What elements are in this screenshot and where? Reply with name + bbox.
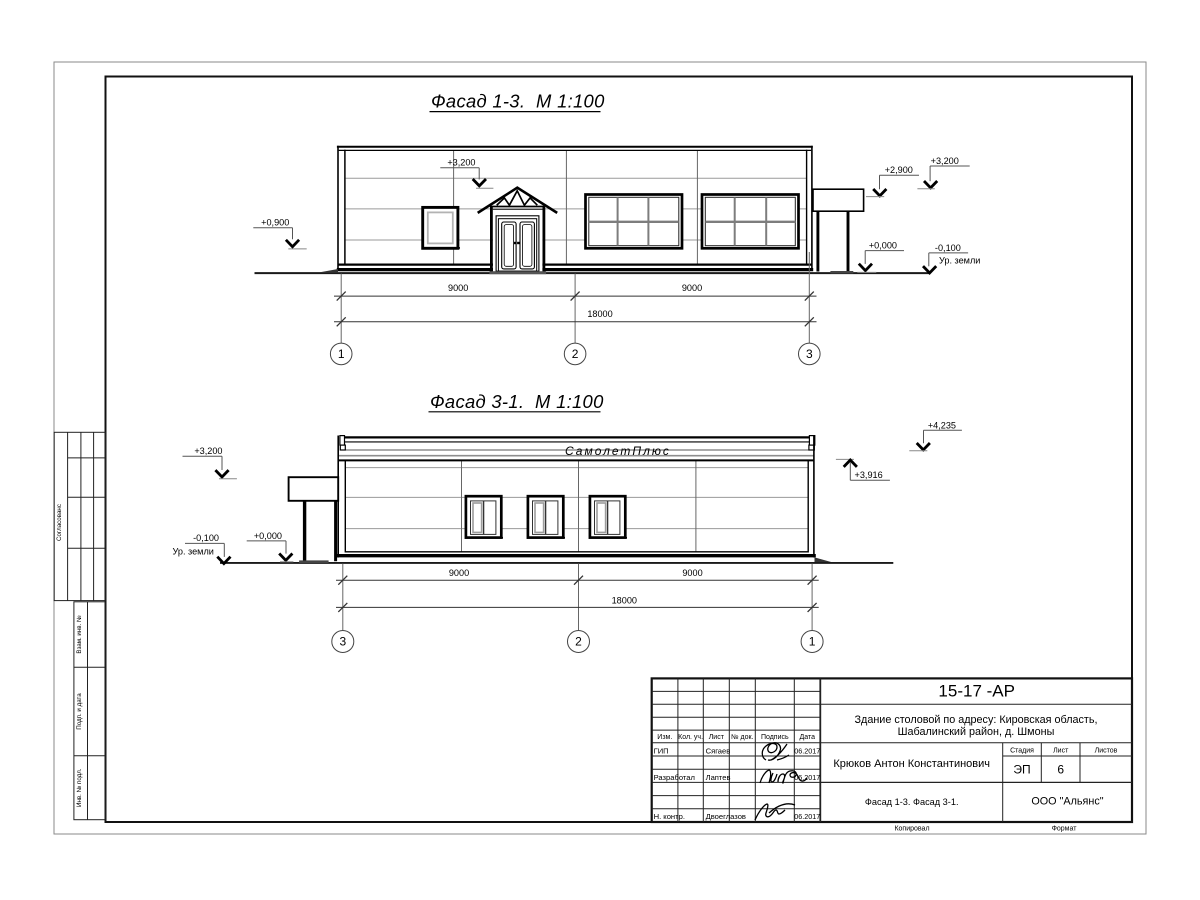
svg-text:Подп. и дата: Подп. и дата xyxy=(76,693,83,730)
svg-text:Ур. земли: Ур. земли xyxy=(173,546,214,556)
svg-text:+4,235: +4,235 xyxy=(928,420,956,430)
svg-text:-0,100: -0,100 xyxy=(193,533,219,543)
svg-text:№ док.: № док. xyxy=(731,734,753,741)
svg-text:ООО "Альянс": ООО "Альянс" xyxy=(1031,795,1103,807)
svg-text:9000: 9000 xyxy=(448,283,468,293)
svg-text:9000: 9000 xyxy=(449,568,469,578)
svg-text:Фасад 1-3. М 1:100: Фасад 1-3. М 1:100 xyxy=(431,91,605,112)
svg-text:06.2017: 06.2017 xyxy=(794,746,820,755)
svg-text:+0,000: +0,000 xyxy=(254,531,282,541)
svg-text:Лист: Лист xyxy=(709,734,725,741)
svg-text:18000: 18000 xyxy=(587,309,612,319)
svg-text:Двоеглазов: Двоеглазов xyxy=(706,812,746,821)
svg-text:Листов: Листов xyxy=(1095,747,1118,754)
svg-text:Сягаев: Сягаев xyxy=(706,746,731,755)
svg-text:1: 1 xyxy=(338,347,345,361)
svg-text:+3,200: +3,200 xyxy=(194,446,222,456)
svg-text:Ур. земли: Ур. земли xyxy=(939,255,980,265)
svg-text:ГИП: ГИП xyxy=(654,746,669,755)
svg-text:+3,916: +3,916 xyxy=(855,470,883,480)
svg-text:+3,200: +3,200 xyxy=(447,157,475,167)
svg-text:Копировал: Копировал xyxy=(894,826,929,833)
svg-text:СамолетПлюс: СамолетПлюс xyxy=(565,444,671,458)
svg-text:Фасад 3-1. М 1:100: Фасад 3-1. М 1:100 xyxy=(430,391,604,412)
svg-text:1: 1 xyxy=(809,635,816,649)
svg-text:9000: 9000 xyxy=(682,283,702,293)
svg-text:3: 3 xyxy=(339,635,346,649)
svg-text:ЭП: ЭП xyxy=(1013,762,1030,776)
svg-text:Согласованс: Согласованс xyxy=(56,504,63,541)
svg-text:Н. контр.: Н. контр. xyxy=(654,812,685,821)
svg-text:+0,900: +0,900 xyxy=(261,217,289,227)
svg-text:15-17 -АР: 15-17 -АР xyxy=(938,682,1015,701)
svg-text:+2,900: +2,900 xyxy=(885,165,913,175)
svg-text:Шабалинский район, д. Шмоны: Шабалинский район, д. Шмоны xyxy=(898,726,1055,738)
svg-text:Разработал: Разработал xyxy=(654,773,695,782)
svg-text:Лаптев: Лаптев xyxy=(706,773,731,782)
svg-text:3: 3 xyxy=(806,347,813,361)
svg-text:Формат: Формат xyxy=(1052,826,1078,833)
svg-text:2: 2 xyxy=(575,635,582,649)
svg-text:Изм.: Изм. xyxy=(657,734,672,741)
svg-text:+0,000: +0,000 xyxy=(869,241,897,251)
svg-text:Подпись: Подпись xyxy=(761,734,789,741)
svg-text:18000: 18000 xyxy=(612,595,637,605)
svg-text:Дата: Дата xyxy=(800,734,816,741)
svg-text:Инв. № подл.: Инв. № подл. xyxy=(76,768,83,807)
svg-text:Взам. инв. №: Взам. инв. № xyxy=(76,615,83,654)
svg-text:Лист: Лист xyxy=(1053,747,1069,754)
svg-text:2: 2 xyxy=(572,347,579,361)
svg-text:+3,200: +3,200 xyxy=(931,156,959,166)
svg-text:9000: 9000 xyxy=(682,568,702,578)
svg-text:Крюков Антон Константинович: Крюков Антон Константинович xyxy=(833,758,990,770)
svg-text:Кол. уч.: Кол. уч. xyxy=(678,734,703,741)
svg-text:06.2017: 06.2017 xyxy=(794,812,820,821)
svg-text:-0,100: -0,100 xyxy=(935,243,961,253)
svg-text:Фасад 1-3. Фасад 3-1.: Фасад 1-3. Фасад 3-1. xyxy=(865,797,959,807)
svg-text:Здание столовой по адресу: Кир: Здание столовой по адресу: Кировская обл… xyxy=(855,714,1098,726)
svg-text:6: 6 xyxy=(1057,762,1064,776)
svg-text:Стадия: Стадия xyxy=(1010,747,1034,754)
